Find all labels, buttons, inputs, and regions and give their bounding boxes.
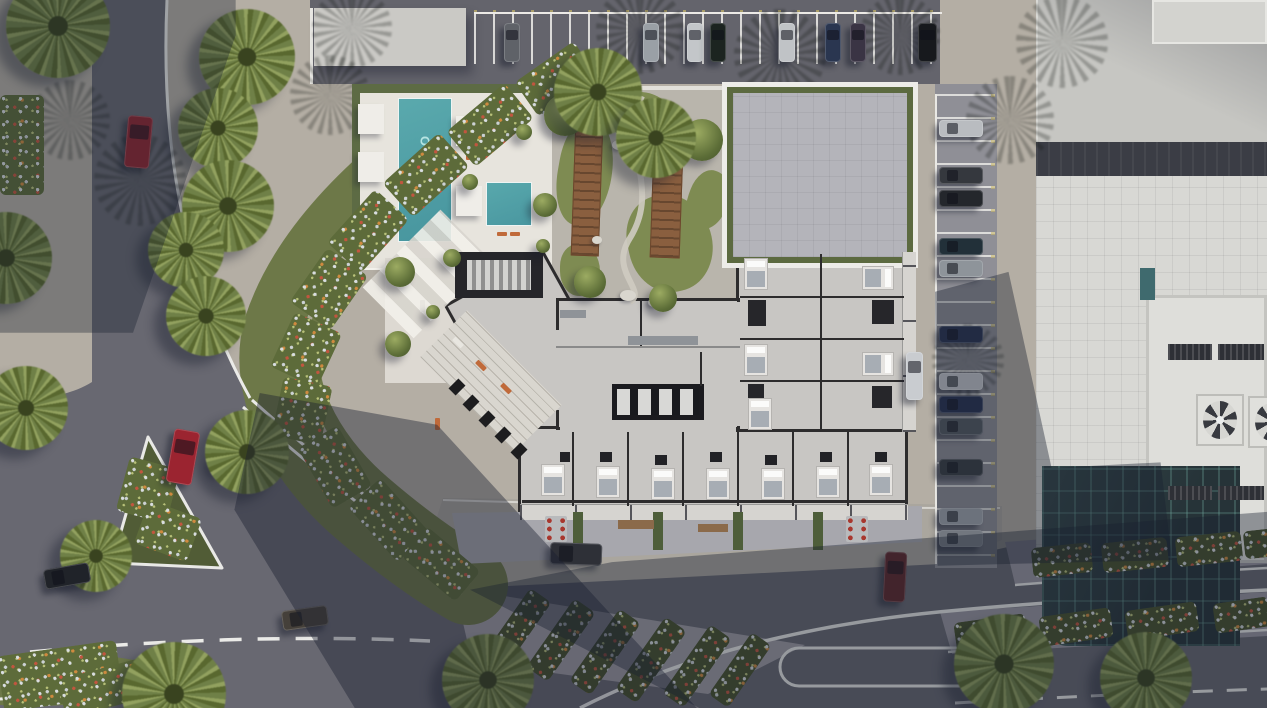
car-windshield: [947, 263, 958, 275]
furniture-block: [655, 455, 667, 465]
apartment-bed: [862, 266, 894, 290]
interior-wall: [740, 338, 904, 340]
car-windshield: [559, 546, 573, 562]
car-windshield: [712, 30, 724, 40]
apartment-bed: [744, 258, 768, 290]
tree-canopy: [385, 331, 411, 357]
roof-vent: [1168, 486, 1212, 500]
furniture-block: [560, 452, 570, 462]
terrace-planter: [733, 512, 743, 550]
car-windshield: [947, 462, 958, 474]
garden-stone: [592, 236, 602, 244]
apartment-bed: [744, 344, 768, 376]
car: [124, 115, 153, 169]
floor-patch: [728, 302, 744, 426]
tree-canopy: [462, 174, 478, 190]
fan-blades: [1255, 403, 1267, 441]
stair-treads: [467, 260, 531, 290]
roof-vent: [1218, 486, 1264, 500]
apartment-bed: [596, 466, 620, 498]
car: [939, 167, 983, 184]
garden-stone: [620, 290, 636, 301]
interior-wall: [737, 432, 739, 506]
stall-ticks-right: [991, 94, 995, 564]
apartment-bed: [748, 398, 772, 430]
car-windshield: [947, 329, 958, 341]
car-windshield: [947, 399, 958, 411]
furniture-block: [872, 386, 892, 408]
sun-lounger: [435, 418, 440, 430]
roof-vent: [1218, 344, 1264, 360]
furniture-block: [875, 452, 887, 462]
floor-patch: [560, 420, 736, 434]
sun-lounger: [420, 300, 425, 312]
car: [939, 260, 983, 277]
tree-canopy: [516, 124, 532, 140]
terrace-planter: [813, 512, 823, 550]
sun-lounger: [497, 232, 507, 236]
dark-paver-strip: [1036, 142, 1267, 176]
flower-bed: [0, 95, 44, 195]
palm-tree: [166, 276, 246, 356]
car-windshield: [947, 170, 958, 182]
apartment-bed: [862, 352, 894, 376]
car: [643, 23, 659, 62]
car: [883, 551, 908, 602]
interior-wall: [700, 352, 702, 386]
car-windshield: [645, 30, 657, 40]
terrace-table-set: [846, 516, 868, 542]
car: [939, 508, 983, 525]
terrace-planter: [653, 512, 663, 550]
car-windshield: [947, 376, 958, 388]
car: [939, 373, 983, 390]
furniture-block: [872, 300, 894, 324]
interior-wall: [627, 432, 629, 506]
car-windshield: [129, 125, 149, 140]
apartment-bed: [816, 466, 840, 498]
tree-canopy: [649, 284, 677, 312]
palm-tree: [205, 410, 289, 494]
jacuzzi: [486, 182, 532, 226]
elevator-bank: [612, 384, 704, 420]
car-windshield: [947, 511, 958, 523]
car: [550, 542, 603, 566]
car: [918, 23, 937, 62]
apartment-bed: [651, 468, 675, 500]
interior-wall: [792, 432, 794, 506]
tree-canopy: [536, 239, 550, 253]
car: [939, 530, 983, 547]
car-windshield: [852, 30, 864, 40]
car-windshield: [947, 193, 958, 205]
interior-wall: [682, 432, 684, 506]
car-windshield: [506, 30, 518, 40]
car: [939, 396, 983, 413]
car-windshield: [947, 421, 958, 433]
aerial-site-render: Object 1: [0, 0, 1267, 708]
tree-canopy: [426, 305, 440, 319]
car-windshield: [947, 123, 958, 135]
tree-canopy: [574, 266, 606, 298]
flower-bed: [1243, 527, 1267, 560]
car: [850, 23, 866, 62]
interior-wall: [572, 432, 574, 506]
car: [710, 23, 726, 62]
furniture-block: [698, 524, 728, 532]
palm-frond-shadow: [1016, 0, 1108, 88]
tree-canopy: [443, 249, 461, 267]
palm-tree: [616, 98, 696, 178]
pool-cabana: [456, 186, 482, 216]
fan-blades: [1203, 401, 1237, 439]
terrace-table-set: [545, 516, 567, 542]
interior-wall: [522, 500, 908, 503]
car: [939, 459, 983, 476]
skylight: [1140, 268, 1155, 300]
furniture-block: [560, 310, 586, 318]
furniture-block: [748, 300, 766, 326]
car: [939, 120, 983, 137]
furniture-block: [710, 452, 722, 462]
furniture-block: [820, 452, 832, 462]
car: [825, 23, 841, 62]
car-windshield: [289, 611, 303, 627]
interior-wall: [740, 380, 904, 382]
car-windshield: [908, 361, 921, 373]
apartment-bed: [541, 464, 565, 496]
car-windshield: [174, 438, 196, 455]
car: [906, 352, 923, 400]
car-windshield: [887, 561, 904, 575]
interior-wall: [740, 296, 904, 298]
interior-wall: [847, 432, 849, 506]
pool-cabana: [358, 152, 384, 182]
apartment-bed: [761, 468, 785, 500]
car: [504, 23, 520, 62]
car-windshield: [920, 30, 934, 40]
elevator-doors: [617, 389, 699, 415]
roof-vent: [1168, 344, 1212, 360]
balcony-strip-east: [902, 252, 916, 432]
palm-tree: [178, 88, 258, 168]
amenity-roof: [722, 82, 918, 268]
palm-tree: [954, 614, 1054, 708]
flower-bed: [1031, 542, 1094, 578]
sun-lounger: [510, 232, 520, 236]
furniture-block: [765, 455, 777, 465]
amenity-roof-slab: [727, 87, 913, 263]
car-windshield: [781, 30, 793, 40]
car: [939, 190, 983, 207]
pool-cabana: [358, 104, 384, 134]
car-windshield: [51, 570, 65, 586]
rooftop-fan: [1196, 394, 1244, 446]
car: [939, 326, 983, 343]
apartment-bed: [706, 468, 730, 500]
furniture-block: [600, 452, 612, 462]
furniture-block: [618, 520, 654, 529]
car-windshield: [947, 241, 958, 253]
apartment-bed: [869, 464, 893, 496]
rooftop-fan: [1248, 396, 1267, 448]
car: [779, 23, 795, 62]
car-windshield: [947, 533, 958, 545]
tree-canopy: [533, 193, 557, 217]
car-windshield: [827, 30, 839, 40]
stairwell: [455, 252, 543, 298]
tree-canopy: [385, 257, 415, 287]
furniture-block: [628, 336, 698, 345]
car-windshield: [689, 30, 701, 40]
car: [939, 238, 983, 255]
car: [687, 23, 703, 62]
car: [939, 418, 983, 435]
neighbor-roof-deck: [1152, 0, 1267, 44]
glass-wall: [556, 346, 740, 348]
interior-wall: [820, 254, 822, 430]
